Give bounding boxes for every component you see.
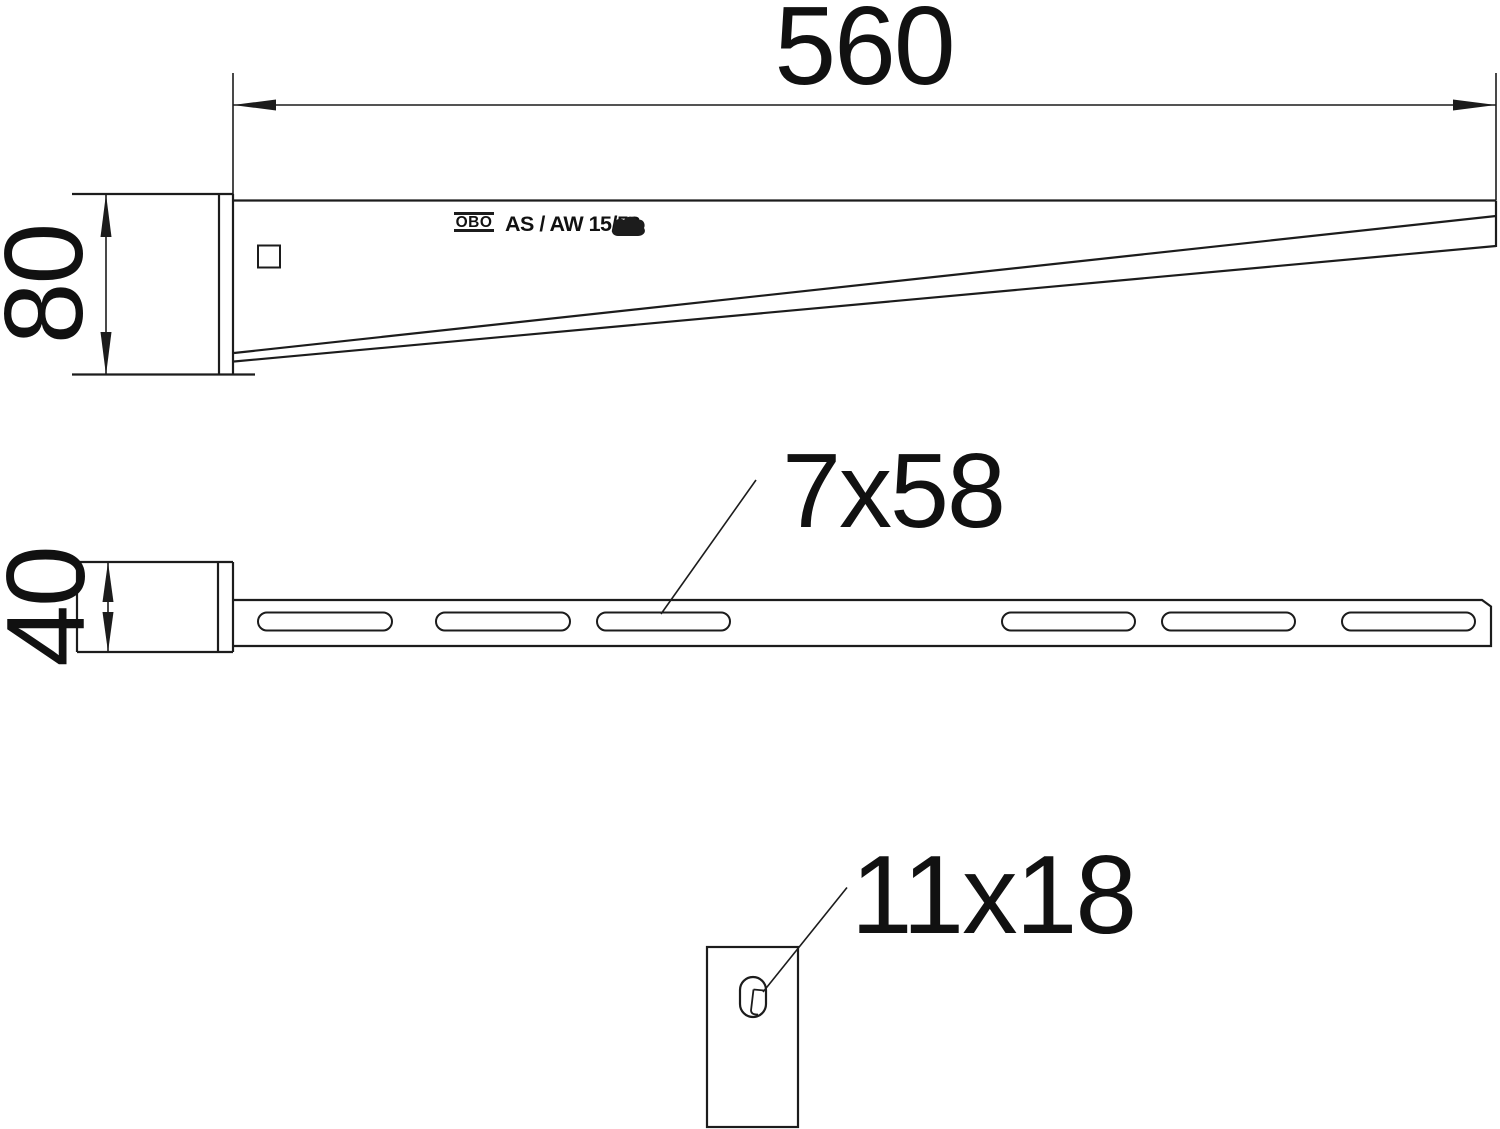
obo-logo: OBO xyxy=(456,214,493,231)
slot-hole-5 xyxy=(1162,613,1295,631)
hole-leader-line xyxy=(763,888,847,993)
slot-hole-1 xyxy=(258,613,392,631)
dim-label-height: 80 xyxy=(0,225,106,344)
bracket-dimension-drawing: 560 80 OBO AS / AW 15/58 xyxy=(0,0,1500,1129)
arm-bottom-edge xyxy=(234,246,1496,362)
end-plate xyxy=(707,947,798,1127)
arrowhead-right xyxy=(1453,100,1496,111)
hole-depth-contour xyxy=(751,990,764,1015)
detail-view xyxy=(707,947,798,1127)
dim-label-width: 40 xyxy=(0,547,108,666)
arm-outline xyxy=(233,600,1491,646)
slot-leader-line xyxy=(661,480,756,614)
dim-label-length: 560 xyxy=(774,0,953,108)
plan-view xyxy=(77,562,1491,652)
slot-hole-3 xyxy=(597,613,730,631)
slot-hole-6 xyxy=(1342,613,1475,631)
square-hole xyxy=(258,246,280,268)
arrowhead-left xyxy=(233,100,276,111)
slot-hole-4 xyxy=(1002,613,1135,631)
product-marking: OBO AS / AW 15/58 xyxy=(454,212,645,236)
slot-size-label: 7x58 xyxy=(782,432,1004,550)
hole-size-label: 11x18 xyxy=(851,833,1135,957)
slot-hole-2 xyxy=(436,613,570,631)
side-view xyxy=(72,194,1496,375)
technical-drawing-page: 560 80 OBO AS / AW 15/58 xyxy=(0,0,1500,1129)
arm-fold-line xyxy=(234,216,1496,353)
